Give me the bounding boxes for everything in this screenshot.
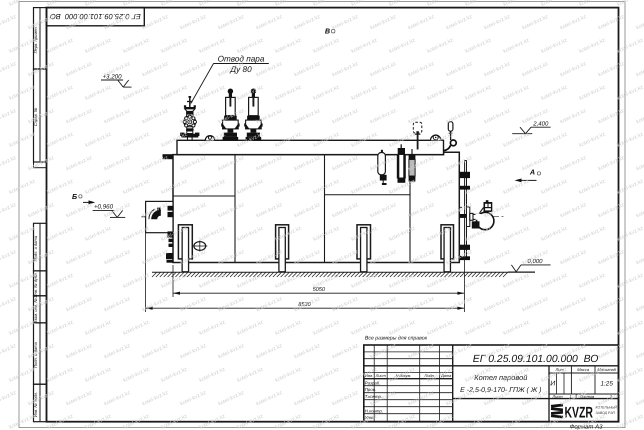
svg-text:Все размеры для справок: Все размеры для справок: [365, 336, 428, 342]
svg-text:Масса: Масса: [577, 367, 590, 372]
svg-text:Разраб.: Разраб.: [365, 380, 381, 385]
svg-text:Лист: Лист: [375, 373, 387, 378]
svg-text:KVZR: KVZR: [565, 404, 594, 421]
svg-text:ЗАВОД РЭП: ЗАВОД РЭП: [596, 411, 616, 415]
svg-text:Е -2,5-0,9-170- ГПЖ ( Ж ): Е -2,5-0,9-170- ГПЖ ( Ж ): [460, 386, 541, 394]
svg-text:Б: Б: [72, 192, 77, 201]
svg-text:Лист: Лист: [551, 394, 563, 399]
svg-text:В: В: [325, 27, 330, 36]
svg-text:Н.контр.: Н.контр.: [365, 408, 383, 413]
svg-text:2,400: 2,400: [532, 121, 549, 128]
svg-text:Пров.: Пров.: [365, 387, 376, 392]
svg-text:1:25: 1:25: [600, 381, 613, 388]
